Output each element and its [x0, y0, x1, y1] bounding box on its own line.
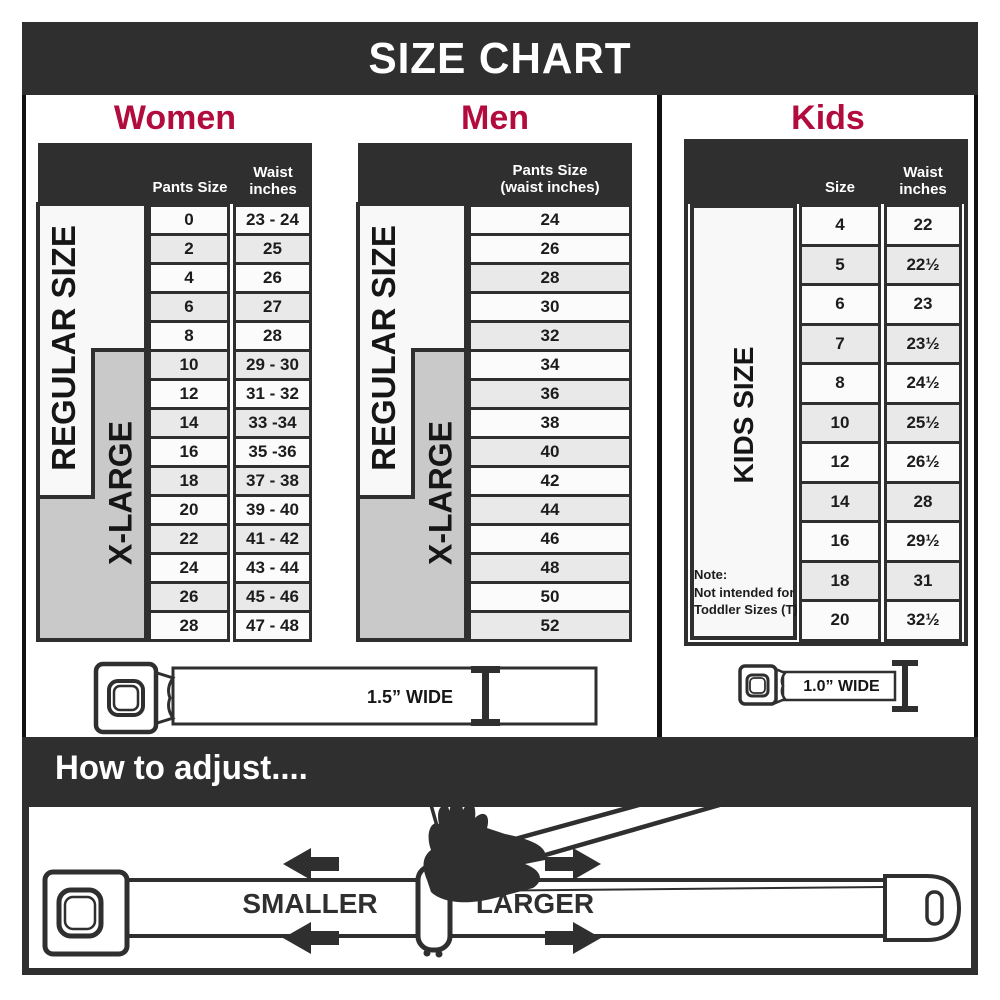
size-cell: 4 — [799, 204, 881, 247]
women-col2-header: Waist inches — [234, 164, 312, 199]
waist-cell: 22 — [884, 204, 962, 247]
size-cell: 34 — [468, 349, 632, 381]
size-cell: 52 — [468, 610, 632, 642]
waist-cell: 24½ — [884, 362, 962, 405]
kids-size-column: 45678101214161820 — [799, 204, 881, 642]
size-cell: 38 — [468, 407, 632, 439]
panel-border-left — [22, 95, 26, 737]
size-cell: 44 — [468, 494, 632, 526]
kids-waist-column: 2222½2323½24½25½26½2829½3132½ — [884, 204, 962, 642]
waist-cell: 22½ — [884, 244, 962, 287]
waist-cell: 31 - 32 — [233, 378, 312, 410]
size-cell: 6 — [799, 283, 881, 326]
size-cell: 12 — [799, 441, 881, 484]
size-cell: 0 — [148, 204, 230, 236]
waist-cell: 27 — [233, 291, 312, 323]
belt-tip — [885, 876, 959, 940]
women-xlarge-label: X-LARGE — [103, 421, 140, 565]
size-cell: 26 — [148, 581, 230, 613]
waist-cell: 39 - 40 — [233, 494, 312, 526]
men-pants-size-column: 242628303234363840424446485052 — [468, 204, 632, 642]
waist-cell: 29 - 30 — [233, 349, 312, 381]
waist-cell: 41 - 42 — [233, 523, 312, 555]
kids-col2-header: Waist inches — [884, 164, 962, 199]
size-cell: 5 — [799, 244, 881, 287]
size-cell: 20 — [799, 599, 881, 642]
size-cell: 20 — [148, 494, 230, 526]
size-cell: 22 — [148, 523, 230, 555]
title-banner: SIZE CHART — [22, 22, 978, 95]
waist-cell: 43 - 44 — [233, 552, 312, 584]
size-cell: 50 — [468, 581, 632, 613]
waist-cell: 23 — [884, 283, 962, 326]
kids-seatbelt-buckle-icon — [740, 666, 785, 704]
men-xlarge-label: X-LARGE — [423, 421, 460, 565]
waist-cell: 45 - 46 — [233, 581, 312, 613]
size-cell: 26 — [468, 233, 632, 265]
waist-cell: 25½ — [884, 402, 962, 445]
adult-belt-width-label: 1.5” WIDE — [330, 687, 490, 708]
size-cell: 18 — [148, 465, 230, 497]
waist-cell: 26½ — [884, 441, 962, 484]
size-cell: 16 — [799, 520, 881, 563]
kids-size-label: KIDS SIZE — [728, 347, 760, 484]
waist-cell: 33 -34 — [233, 407, 312, 439]
women-col1-header: Pants Size — [148, 179, 232, 196]
panel-border-right — [974, 95, 978, 737]
size-cell: 28 — [468, 262, 632, 294]
size-cell: 40 — [468, 436, 632, 468]
waist-cell: 23 - 24 — [233, 204, 312, 236]
waist-cell: 29½ — [884, 520, 962, 563]
women-pants-size-column: 0246810121416182022242628 — [148, 204, 230, 642]
size-cell: 24 — [148, 552, 230, 584]
adjust-belt-illustration — [27, 760, 971, 972]
size-cell: 48 — [468, 552, 632, 584]
waist-cell: 37 - 38 — [233, 465, 312, 497]
adjust-buckle-icon — [45, 872, 127, 954]
size-cell: 10 — [799, 402, 881, 445]
size-chart-page: SIZE CHART Women Men Kids Pants Size Wai… — [0, 0, 1000, 1000]
size-cell: 10 — [148, 349, 230, 381]
size-cell: 32 — [468, 320, 632, 352]
panel-divider — [657, 95, 662, 737]
waist-cell: 31 — [884, 560, 962, 603]
size-cell: 8 — [799, 362, 881, 405]
size-cell: 42 — [468, 465, 632, 497]
smaller-label: SMALLER — [230, 888, 390, 922]
size-cell: 4 — [148, 262, 230, 294]
seatbelt-buckle-icon — [96, 664, 173, 732]
men-table-header: Pants Size (waist inches) — [358, 143, 632, 204]
size-cell: 36 — [468, 378, 632, 410]
women-heading: Women — [38, 99, 312, 141]
size-cell: 24 — [468, 204, 632, 236]
women-regular-size-label: REGULAR SIZE — [45, 225, 83, 471]
kids-belt-width-label: 1.0” WIDE — [783, 678, 900, 696]
arrow-left-icon — [283, 848, 339, 880]
waist-cell: 32½ — [884, 599, 962, 642]
kids-table-header: Size Waist inches — [688, 143, 964, 204]
size-cell: 2 — [148, 233, 230, 265]
size-cell: 18 — [799, 560, 881, 603]
women-table-header: Pants Size Waist inches — [38, 143, 312, 204]
waist-cell: 23½ — [884, 323, 962, 366]
kids-col1-header: Size — [799, 179, 881, 196]
size-cell: 46 — [468, 523, 632, 555]
waist-cell: 35 -36 — [233, 436, 312, 468]
size-cell: 16 — [148, 436, 230, 468]
waist-cell: 28 — [884, 481, 962, 524]
kids-heading: Kids — [690, 99, 966, 141]
size-cell: 8 — [148, 320, 230, 352]
size-cell: 14 — [148, 407, 230, 439]
kids-note: Note: Not intended for Toddler Sizes (T) — [694, 566, 800, 619]
waist-cell: 47 - 48 — [233, 610, 312, 642]
waist-cell: 26 — [233, 262, 312, 294]
size-cell: 14 — [799, 481, 881, 524]
size-cell: 30 — [468, 291, 632, 323]
men-regular-size-label: REGULAR SIZE — [365, 225, 403, 471]
size-cell: 28 — [148, 610, 230, 642]
waist-cell: 28 — [233, 320, 312, 352]
size-cell: 12 — [148, 378, 230, 410]
size-cell: 6 — [148, 291, 230, 323]
men-col-header: Pants Size (waist inches) — [468, 162, 632, 197]
men-heading: Men — [358, 99, 632, 141]
size-cell: 7 — [799, 323, 881, 366]
waist-cell: 25 — [233, 233, 312, 265]
larger-label: LARGER — [455, 888, 615, 922]
women-waist-column: 23 - 242526272829 - 3031 - 3233 -3435 -3… — [233, 204, 312, 642]
page-title: SIZE CHART — [368, 34, 631, 84]
